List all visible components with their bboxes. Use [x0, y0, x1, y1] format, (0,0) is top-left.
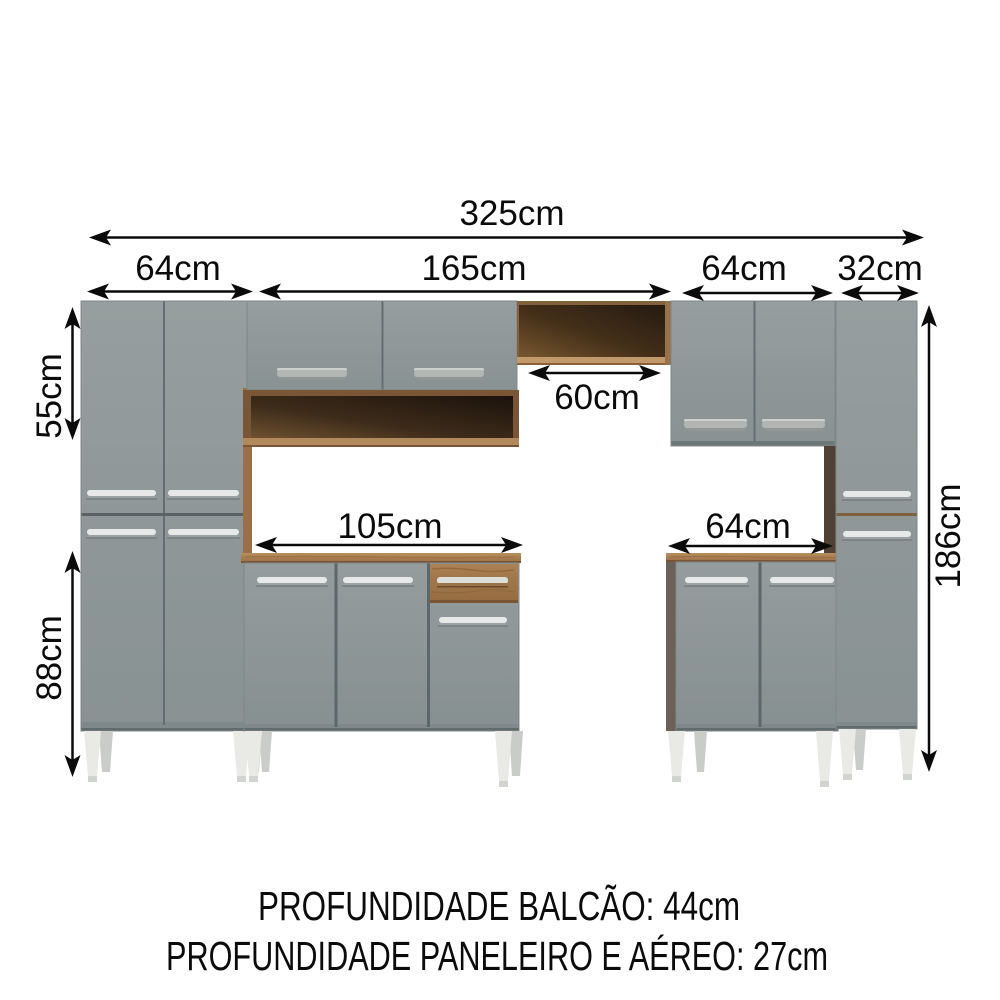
svg-text:60cm: 60cm [554, 378, 640, 417]
svg-text:55cm: 55cm [30, 353, 69, 439]
svg-text:PROFUNDIDADE BALCÃO: 44cm: PROFUNDIDADE BALCÃO: 44cm [258, 883, 740, 929]
svg-text:64cm: 64cm [701, 249, 787, 288]
svg-text:32cm: 32cm [837, 249, 923, 288]
svg-text:PROFUNDIDADE PANELEIRO E AÉREO: PROFUNDIDADE PANELEIRO E AÉREO: 27cm [166, 933, 828, 979]
svg-text:325cm: 325cm [459, 194, 564, 233]
svg-text:88cm: 88cm [30, 615, 69, 701]
svg-text:186cm: 186cm [929, 483, 968, 588]
svg-text:165cm: 165cm [421, 249, 526, 288]
svg-text:64cm: 64cm [705, 507, 791, 546]
svg-text:64cm: 64cm [135, 249, 221, 288]
svg-text:105cm: 105cm [337, 507, 442, 546]
